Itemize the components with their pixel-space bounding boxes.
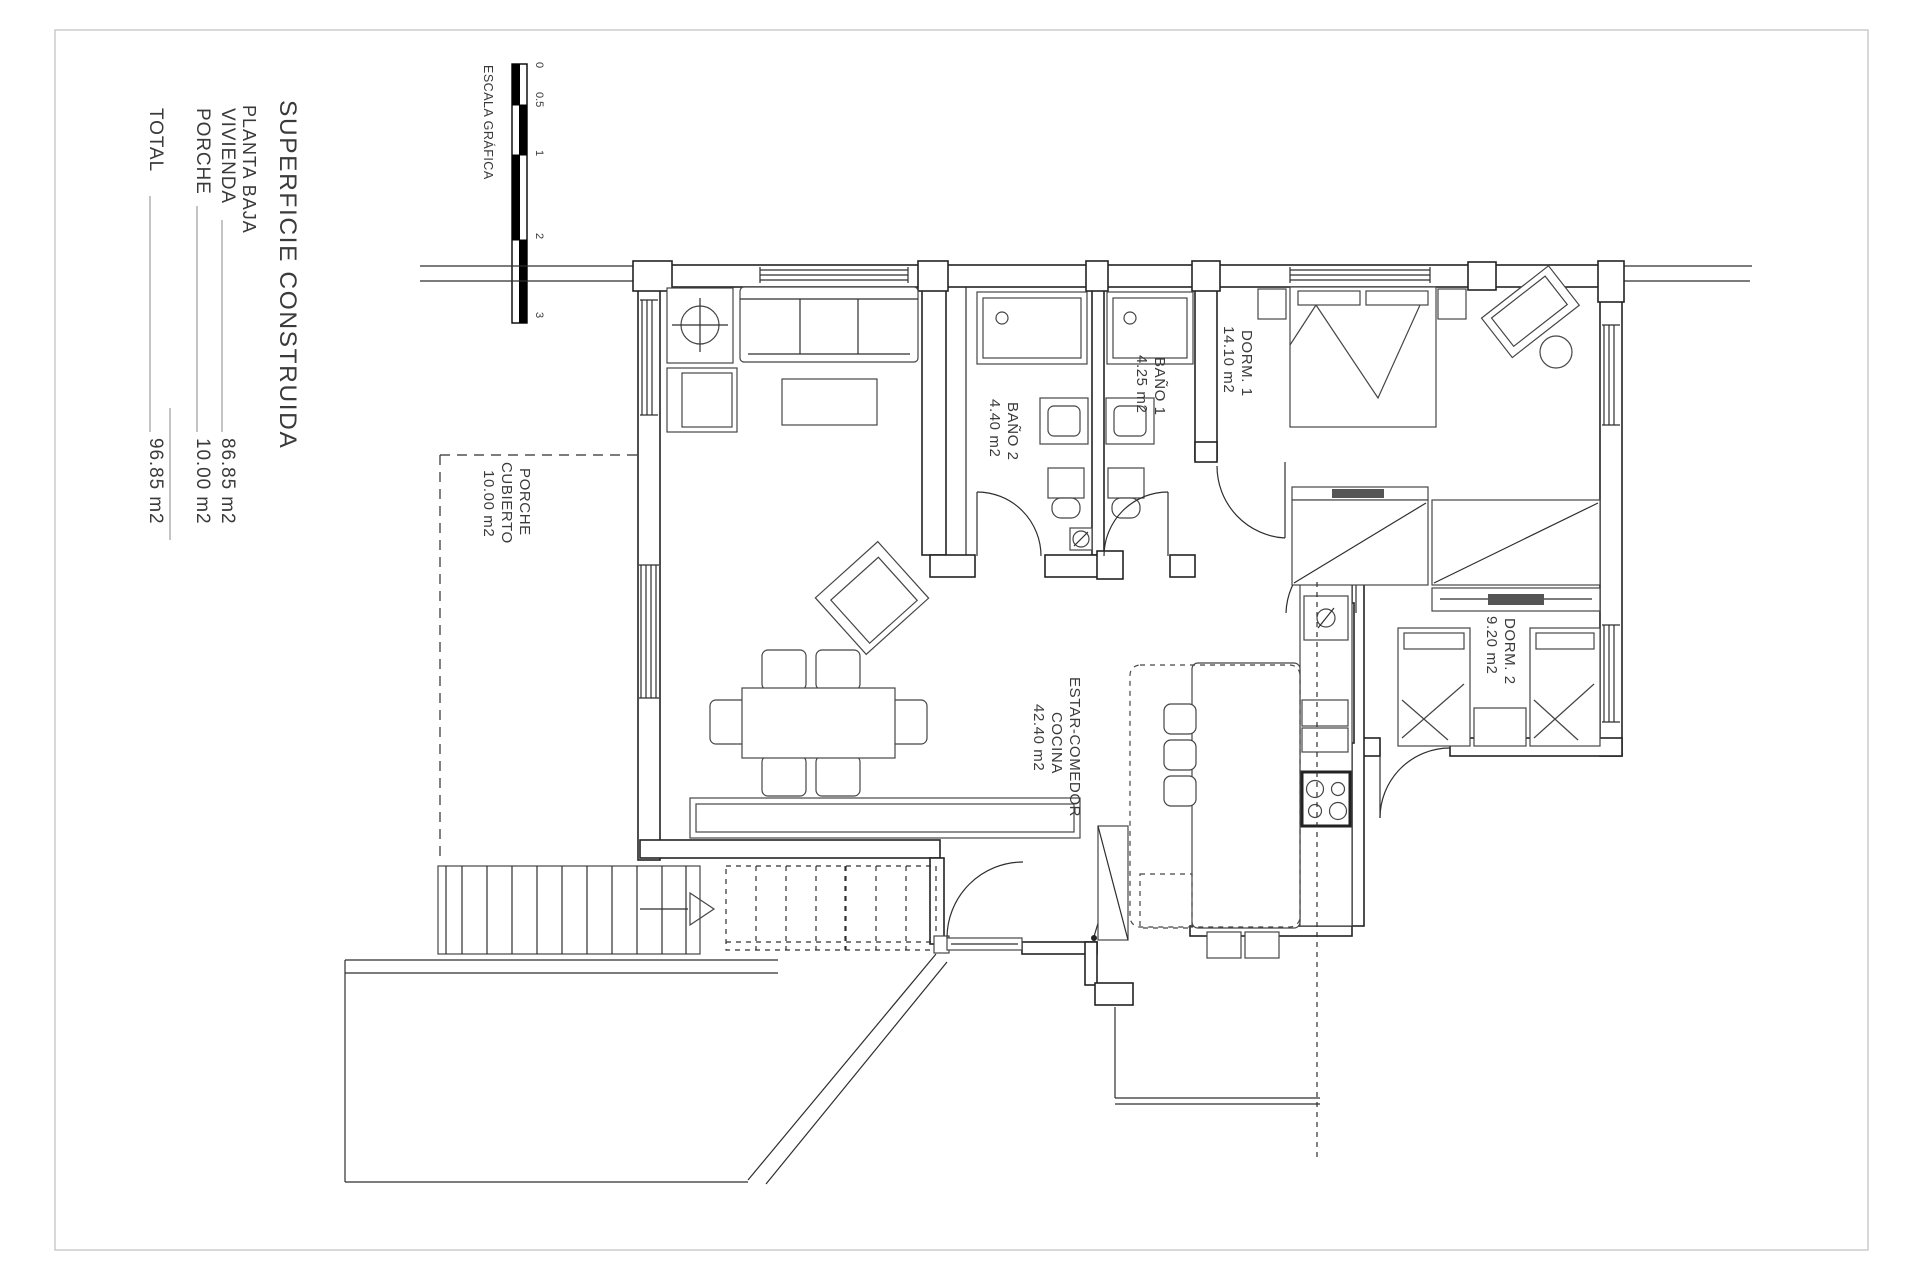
- dining-chair: [816, 650, 860, 690]
- nightstand: [1474, 708, 1526, 746]
- room-label-porche-2: CUBIERTO: [498, 462, 515, 544]
- sofa: [740, 287, 918, 362]
- shower-tray-2: [977, 292, 1087, 364]
- scale-tick-2: 2: [533, 233, 545, 239]
- room-label-estar-2: COCINA: [1048, 712, 1065, 774]
- room-area-estar: 42.40 m2: [1030, 704, 1047, 771]
- bar-stool: [1164, 704, 1196, 734]
- scale-tick-05: 0.5: [533, 92, 545, 107]
- page-title: SUPERFICIE CONSTRUIDA: [274, 100, 301, 449]
- scale-tick-1: 1: [533, 150, 545, 156]
- dining-table: [742, 688, 895, 758]
- scale-tick-3: 3: [533, 312, 545, 318]
- dining-chair: [816, 756, 860, 796]
- nightstand: [1258, 289, 1286, 319]
- coffee-table: [782, 379, 877, 425]
- scale-tick-0: 0: [533, 62, 545, 68]
- dining-chair: [762, 650, 806, 690]
- room-label-bano1: BAÑO 1: [1151, 357, 1168, 416]
- room-label-bano2: BAÑO 2: [1004, 402, 1021, 461]
- dining-chair: [762, 756, 806, 796]
- exterior-step: [1207, 932, 1241, 958]
- desk-stool: [1540, 336, 1572, 368]
- row-value-total: 96.85 m2: [145, 438, 166, 524]
- scale-bar-label: ESCALA GRÁFICA: [481, 65, 496, 180]
- room-label-estar-1: ESTAR-COMEDOR: [1066, 677, 1083, 817]
- room-label-porche-1: PORCHE: [516, 468, 533, 536]
- shower-tray-1: [1107, 292, 1193, 364]
- room-area-bano2: 4.40 m2: [986, 399, 1003, 457]
- double-bed: [1290, 287, 1436, 427]
- row-label-porche: PORCHE: [192, 108, 213, 195]
- page-subtitle: PLANTA BAJA: [239, 105, 259, 234]
- bar-stool: [1164, 740, 1196, 770]
- nightstand: [1438, 289, 1466, 319]
- room-area-porche: 10.00 m2: [480, 470, 497, 537]
- room-area-bano1: 4.25 m2: [1133, 355, 1150, 413]
- vanity-2: [1040, 398, 1088, 444]
- kitchen-island: [1192, 663, 1300, 928]
- room-label-dorm1: DORM. 1: [1238, 330, 1255, 397]
- armchair-left: [667, 368, 737, 432]
- row-value-vivienda: 86.85 m2: [217, 438, 238, 524]
- toilet-2: [1048, 468, 1084, 498]
- floorplan-drawing: SUPERFICIE CONSTRUIDA PLANTA BAJA VIVIEN…: [0, 0, 1920, 1280]
- bar-stool: [1164, 776, 1196, 806]
- row-label-vivienda: VIVIENDA: [217, 108, 238, 204]
- toilet-1: [1108, 468, 1144, 498]
- room-label-dorm2: DORM. 2: [1501, 618, 1518, 685]
- row-value-porche: 10.00 m2: [192, 438, 213, 524]
- exterior-step: [1245, 932, 1279, 958]
- floorplan-sheet: SUPERFICIE CONSTRUIDA PLANTA BAJA VIVIEN…: [0, 0, 1920, 1280]
- room-area-dorm2: 9.20 m2: [1483, 616, 1500, 674]
- row-label-total: TOTAL: [145, 108, 166, 172]
- room-area-dorm1: 14.10 m2: [1220, 326, 1237, 393]
